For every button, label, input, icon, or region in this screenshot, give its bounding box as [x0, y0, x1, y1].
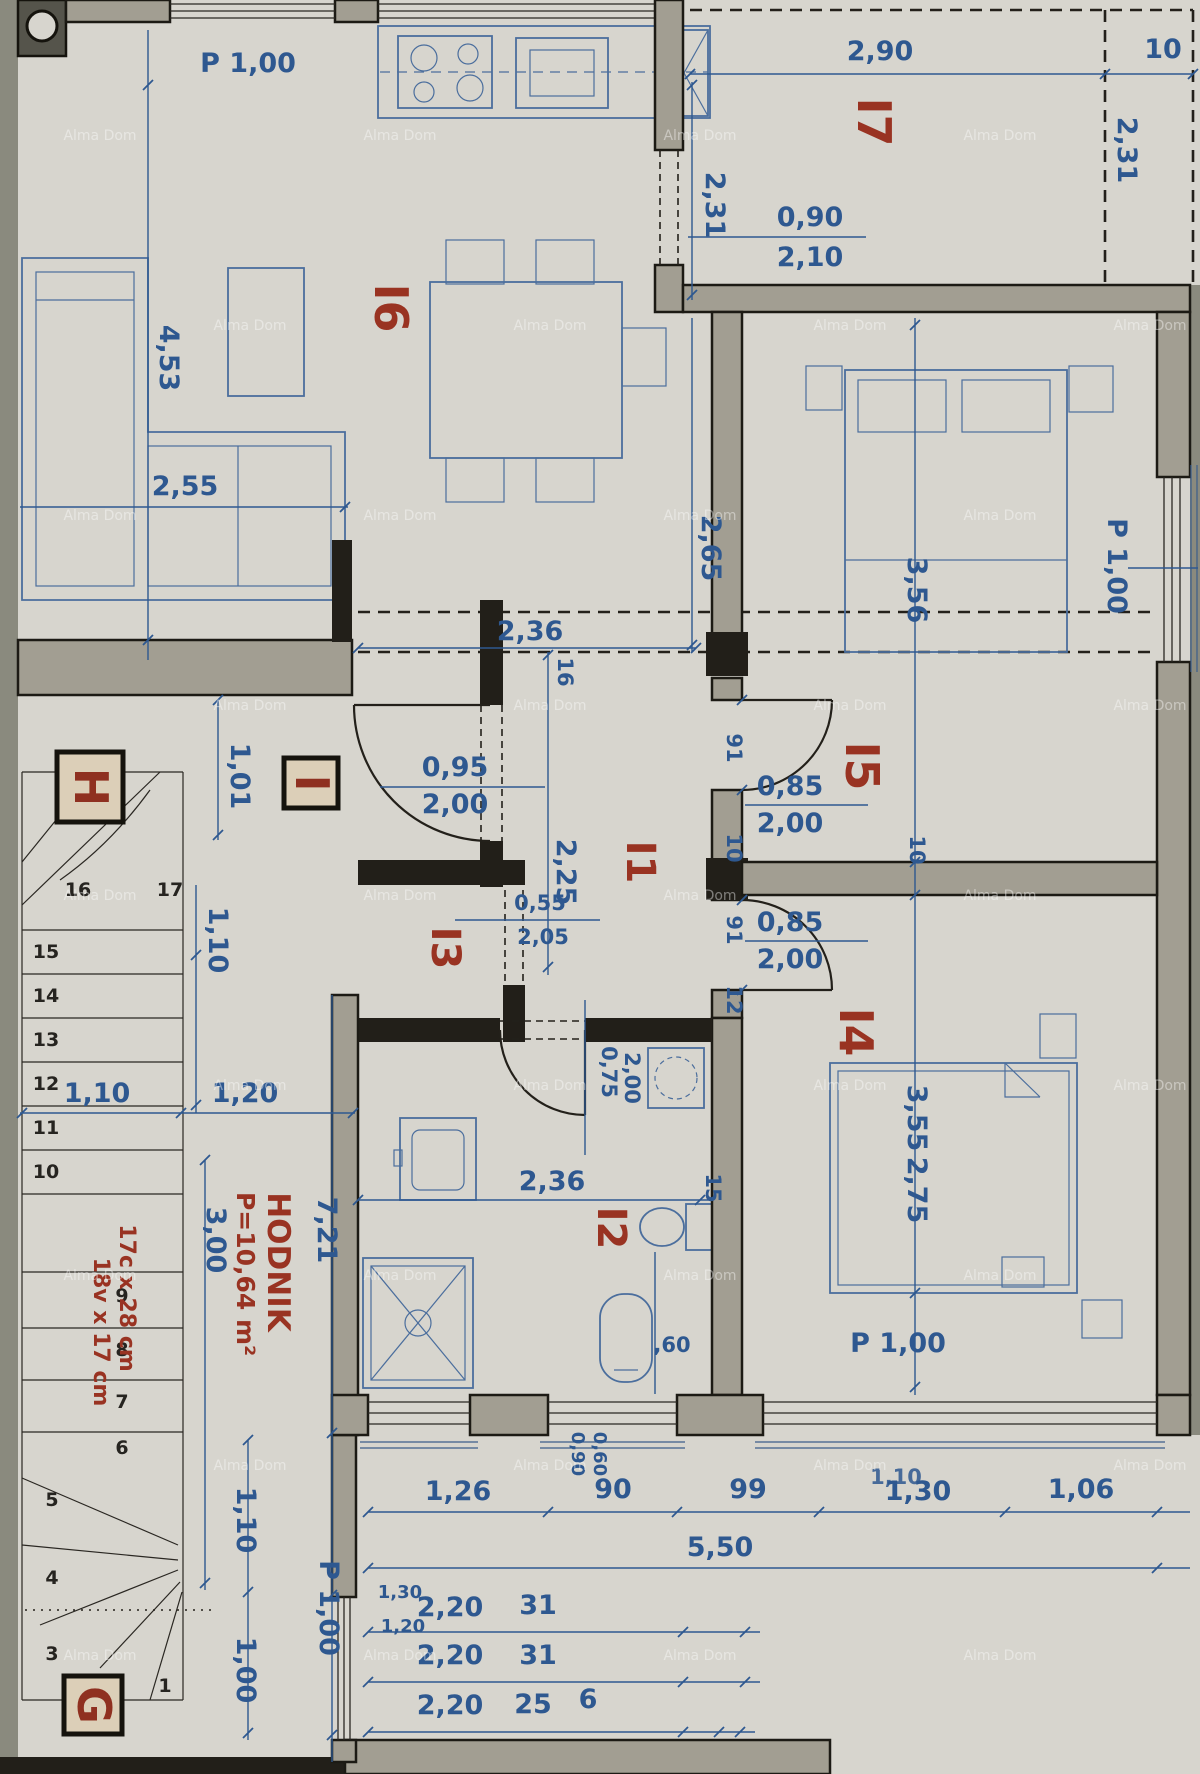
watermark: Alma Dom [63, 508, 136, 524]
dim-236-top: 2,36 [497, 616, 564, 647]
dim-290: 2,90 [847, 36, 914, 67]
room-label-i6: I6 [364, 283, 418, 332]
dim-355: 3,55 [901, 1085, 932, 1152]
room-label-i: I [285, 774, 339, 791]
dim-row5-220: 2,20 [417, 1690, 484, 1721]
step-7: 7 [115, 1391, 128, 1413]
watermark: Alma Dom [1113, 1078, 1186, 1094]
stair-note-1: 17c x 28 cm [114, 1224, 139, 1371]
step-1: 1 [158, 1675, 171, 1697]
sofa [22, 258, 345, 600]
dim-101: 1,01 [224, 743, 255, 810]
step-10: 10 [33, 1161, 59, 1183]
window-bottom-a [360, 1402, 478, 1448]
dim-chain-91a: 91 [722, 733, 746, 762]
step-4: 4 [45, 1567, 58, 1589]
hodnik-label: HODNIK [260, 1192, 296, 1333]
dim-110-stairs-h: 1,10 [64, 1078, 131, 1109]
room-label-i5: I5 [835, 741, 889, 790]
step-13: 13 [33, 1029, 59, 1051]
dim-453: 4,53 [153, 325, 184, 392]
room-label-i7: I7 [847, 97, 901, 146]
step-17: 17 [157, 879, 183, 901]
watermark: Alma Dom [963, 128, 1036, 144]
dim-door-i3-w: 0,55 [514, 891, 566, 915]
dim-chain-12: 12 [722, 985, 746, 1014]
door-arc-i2 [500, 1030, 585, 1115]
watermark: Alma Dom [663, 1268, 736, 1284]
dim-row1-130: 1,30 [885, 1476, 952, 1507]
dim-row5-6: 6 [579, 1684, 598, 1715]
dim-row3-220: 2,20 [417, 1592, 484, 1623]
column-circle-icon [27, 11, 57, 41]
watermark: Alma Dom [363, 128, 436, 144]
dim-row1-106: 1,06 [1048, 1474, 1115, 1505]
watermark: Alma Dom [813, 698, 886, 714]
dim-265: 2,65 [695, 515, 726, 582]
watermark: Alma Dom [813, 318, 886, 334]
watermark: Alma Dom [363, 1648, 436, 1664]
watermark: Alma Dom [213, 1078, 286, 1094]
watermark: Alma Dom [213, 1458, 286, 1474]
dim-16: 16 [553, 657, 577, 686]
window-top-left [170, 4, 335, 18]
dim-door-i4-w: 0,85 [757, 907, 824, 938]
dim-721: 7,21 [311, 1197, 342, 1264]
dim-door-entry-h: 2,00 [422, 789, 489, 820]
dim-100-bl: 1,00 [230, 1637, 261, 1704]
watermark: Alma Dom [363, 888, 436, 904]
window-kitchen [378, 4, 678, 18]
watermark: Alma Dom [963, 1648, 1036, 1664]
dim-row1-99: 99 [729, 1474, 767, 1505]
dim-door-i4-h: 2,00 [757, 944, 824, 975]
window-bottom-b [540, 1402, 685, 1448]
watermark: Alma Dom [963, 888, 1036, 904]
step-5: 5 [45, 1489, 58, 1511]
dim-s120: 1,20 [381, 1616, 425, 1637]
dim-p100-i5: P 1,00 [1101, 518, 1132, 614]
step-12: 12 [33, 1073, 59, 1095]
watermarks: Alma Dom Alma Dom Alma Dom Alma Dom Alma… [63, 128, 1186, 1664]
hodnik-area: P=10,64 m² [231, 1192, 260, 1356]
bed-i4 [830, 1014, 1122, 1338]
watermark: Alma Dom [363, 1268, 436, 1284]
dim-p100-kitchen: P 1,00 [200, 48, 296, 79]
dim-door-terrace-w: 0,90 [777, 202, 844, 233]
dim-s130: 1,30 [378, 1582, 422, 1603]
watermark: Alma Dom [363, 508, 436, 524]
dim-door-i5-w: 0,85 [757, 771, 824, 802]
dim-10-top: 10 [1144, 34, 1182, 65]
dim-chain-10: 10 [722, 833, 746, 862]
watermark: Alma Dom [663, 1648, 736, 1664]
dim-p100-bl: P 1,00 [313, 1560, 344, 1656]
window-bottom-c [755, 1402, 1165, 1448]
watermark: Alma Dom [63, 1268, 136, 1284]
room-label-h: H [64, 768, 118, 807]
floor-plan: 17 16 15 14 13 12 11 10 9 8 7 6 5 4 3 2 … [0, 0, 1200, 1774]
dim-255: 2,55 [152, 471, 219, 502]
room-label-box-h: H [57, 752, 123, 822]
sink-icon [516, 38, 608, 108]
step-14: 14 [33, 985, 59, 1007]
column-top-left [18, 0, 66, 56]
dim-275: 2,75 [901, 1157, 932, 1224]
dim-p100-i4: P 1,00 [850, 1328, 946, 1359]
watermark: Alma Dom [663, 888, 736, 904]
room-label-i4: I4 [829, 1007, 883, 1056]
dim-door-entry-w: 0,95 [422, 752, 489, 783]
boiler-icon [600, 1294, 652, 1382]
watermark: Alma Dom [513, 698, 586, 714]
toilet-icon [640, 1204, 712, 1250]
watermark: Alma Dom [63, 888, 136, 904]
watermark: Alma Dom [813, 1078, 886, 1094]
watermark: Alma Dom [1113, 698, 1186, 714]
dim-pier-060: 0,60 [589, 1432, 610, 1476]
watermark: Alma Dom [213, 318, 286, 334]
step-15: 15 [33, 941, 59, 963]
watermark: Alma Dom [813, 1458, 886, 1474]
dim-236-bath: 2,36 [519, 1166, 586, 1197]
watermark: Alma Dom [1113, 318, 1186, 334]
dim-door-i5-h: 2,00 [757, 808, 824, 839]
dim-110-stairs-v: 1,10 [202, 907, 233, 974]
room-label-i1: I1 [617, 841, 663, 884]
step-3: 3 [45, 1643, 58, 1665]
dim-row3-31: 31 [519, 1590, 557, 1621]
dim-550: 5,50 [687, 1532, 754, 1563]
dim-15: 15 [701, 1173, 725, 1202]
watermark: Alma Dom [513, 318, 586, 334]
dim-60-wc: ,60 [653, 1333, 690, 1357]
watermark: Alma Dom [63, 1648, 136, 1664]
watermark: Alma Dom [963, 508, 1036, 524]
dim-door-terrace-h: 2,10 [777, 242, 844, 273]
dim-door-i3-h: 2,05 [517, 925, 569, 949]
watermark: Alma Dom [213, 698, 286, 714]
dim-door-i2-h: 2,00 [620, 1052, 644, 1104]
watermark: Alma Dom [63, 128, 136, 144]
dim-300: 3,00 [200, 1207, 231, 1274]
watermark: Alma Dom [513, 1078, 586, 1094]
dining-set [430, 240, 666, 502]
room-label-g: G [67, 1686, 121, 1724]
dim-110-bl: 1,10 [230, 1487, 261, 1554]
step-6: 6 [115, 1437, 128, 1459]
sink-vanity-icon [394, 1118, 476, 1200]
step-11: 11 [33, 1117, 59, 1139]
dim-row4-31: 31 [519, 1640, 557, 1671]
watermark: Alma Dom [513, 1458, 586, 1474]
dim-356: 3,56 [901, 557, 932, 624]
room-label-box-g: G [64, 1676, 122, 1734]
watermark: Alma Dom [1113, 1458, 1186, 1474]
dim-10-i4: 10 [905, 835, 929, 864]
room-label-i3: I3 [422, 927, 468, 970]
dim-chain-91b: 91 [722, 915, 746, 944]
dim-231-right: 2,31 [1111, 117, 1142, 184]
dim-231-left: 2,31 [699, 172, 730, 239]
watermark: Alma Dom [663, 508, 736, 524]
room-label-box-i: I [284, 758, 339, 808]
washing-machine-icon [648, 1048, 704, 1108]
dim-row1-126: 1,26 [425, 1476, 492, 1507]
dim-row1-90: 90 [594, 1474, 632, 1505]
dim-door-i2-w: 0,75 [597, 1046, 621, 1098]
dim-row5-25: 25 [514, 1689, 552, 1720]
watermark: Alma Dom [963, 1268, 1036, 1284]
stove-icon [398, 36, 492, 108]
bed-i5 [806, 366, 1113, 652]
door-opening-terrace [660, 150, 678, 265]
watermark: Alma Dom [663, 128, 736, 144]
room-label-i2: I2 [588, 1207, 634, 1250]
